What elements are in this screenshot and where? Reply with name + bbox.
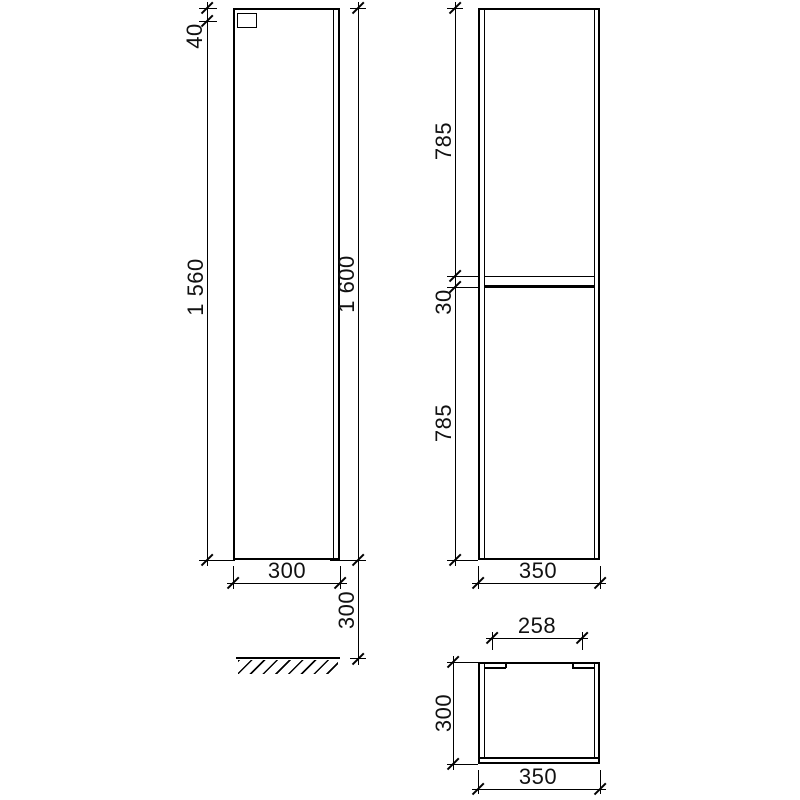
dim-label-floor-clearance: 300 xyxy=(336,591,358,629)
top-view-door-inner-line xyxy=(480,757,598,759)
dim-label-side-depth: 300 xyxy=(268,560,306,582)
top-view-left-bracket-step xyxy=(505,664,507,668)
front-view-upper-door-bottom-line xyxy=(484,276,594,277)
dim-line-top-inner-width xyxy=(486,638,588,639)
dim-label-top-width: 350 xyxy=(519,766,557,788)
front-view-lower-door-top-line xyxy=(484,285,594,288)
dim-label-bracket-offset: 40 xyxy=(184,23,206,48)
front-view-outline xyxy=(478,8,600,560)
ext-line xyxy=(330,560,366,561)
floor-hatching xyxy=(238,660,338,674)
dim-line-side-depth xyxy=(227,583,347,584)
ext-line xyxy=(600,770,601,794)
top-view-right-bracket xyxy=(572,667,594,669)
side-view-outline xyxy=(233,8,340,560)
ext-line xyxy=(600,566,601,589)
dim-line-side-right xyxy=(358,2,359,665)
dim-label-top-inner-width: 258 xyxy=(518,615,556,637)
dim-line-top-width xyxy=(472,789,606,790)
ext-line xyxy=(199,21,217,22)
technical-drawing: 40 1 560 1 600 300 300 785 30 785 350 xyxy=(0,0,800,800)
dim-label-total-height: 1 600 xyxy=(336,255,358,313)
dim-label-body-height: 1 560 xyxy=(185,258,207,316)
front-view-left-reveal-line xyxy=(484,10,485,558)
front-view-right-reveal-line xyxy=(594,10,595,558)
top-view-left-bracket xyxy=(484,667,506,669)
top-view-left-wall-line xyxy=(484,664,485,757)
dim-label-upper-door: 785 xyxy=(433,122,455,160)
ext-line xyxy=(478,770,479,794)
side-view-wall-bracket xyxy=(237,13,257,28)
dim-label-lower-door: 785 xyxy=(433,404,455,442)
ext-line xyxy=(340,566,341,589)
dim-label-center-gap: 30 xyxy=(433,289,455,314)
dim-label-front-width: 350 xyxy=(519,560,557,582)
ext-line xyxy=(199,8,217,9)
top-view-right-wall-line xyxy=(594,664,595,757)
floor-line xyxy=(236,657,340,659)
top-view-right-bracket-step xyxy=(572,664,574,668)
ext-line xyxy=(233,566,234,589)
ext-line xyxy=(478,566,479,589)
dim-label-top-depth: 300 xyxy=(433,694,455,732)
dim-line-front-width xyxy=(472,583,606,584)
top-view-outline xyxy=(478,662,600,764)
